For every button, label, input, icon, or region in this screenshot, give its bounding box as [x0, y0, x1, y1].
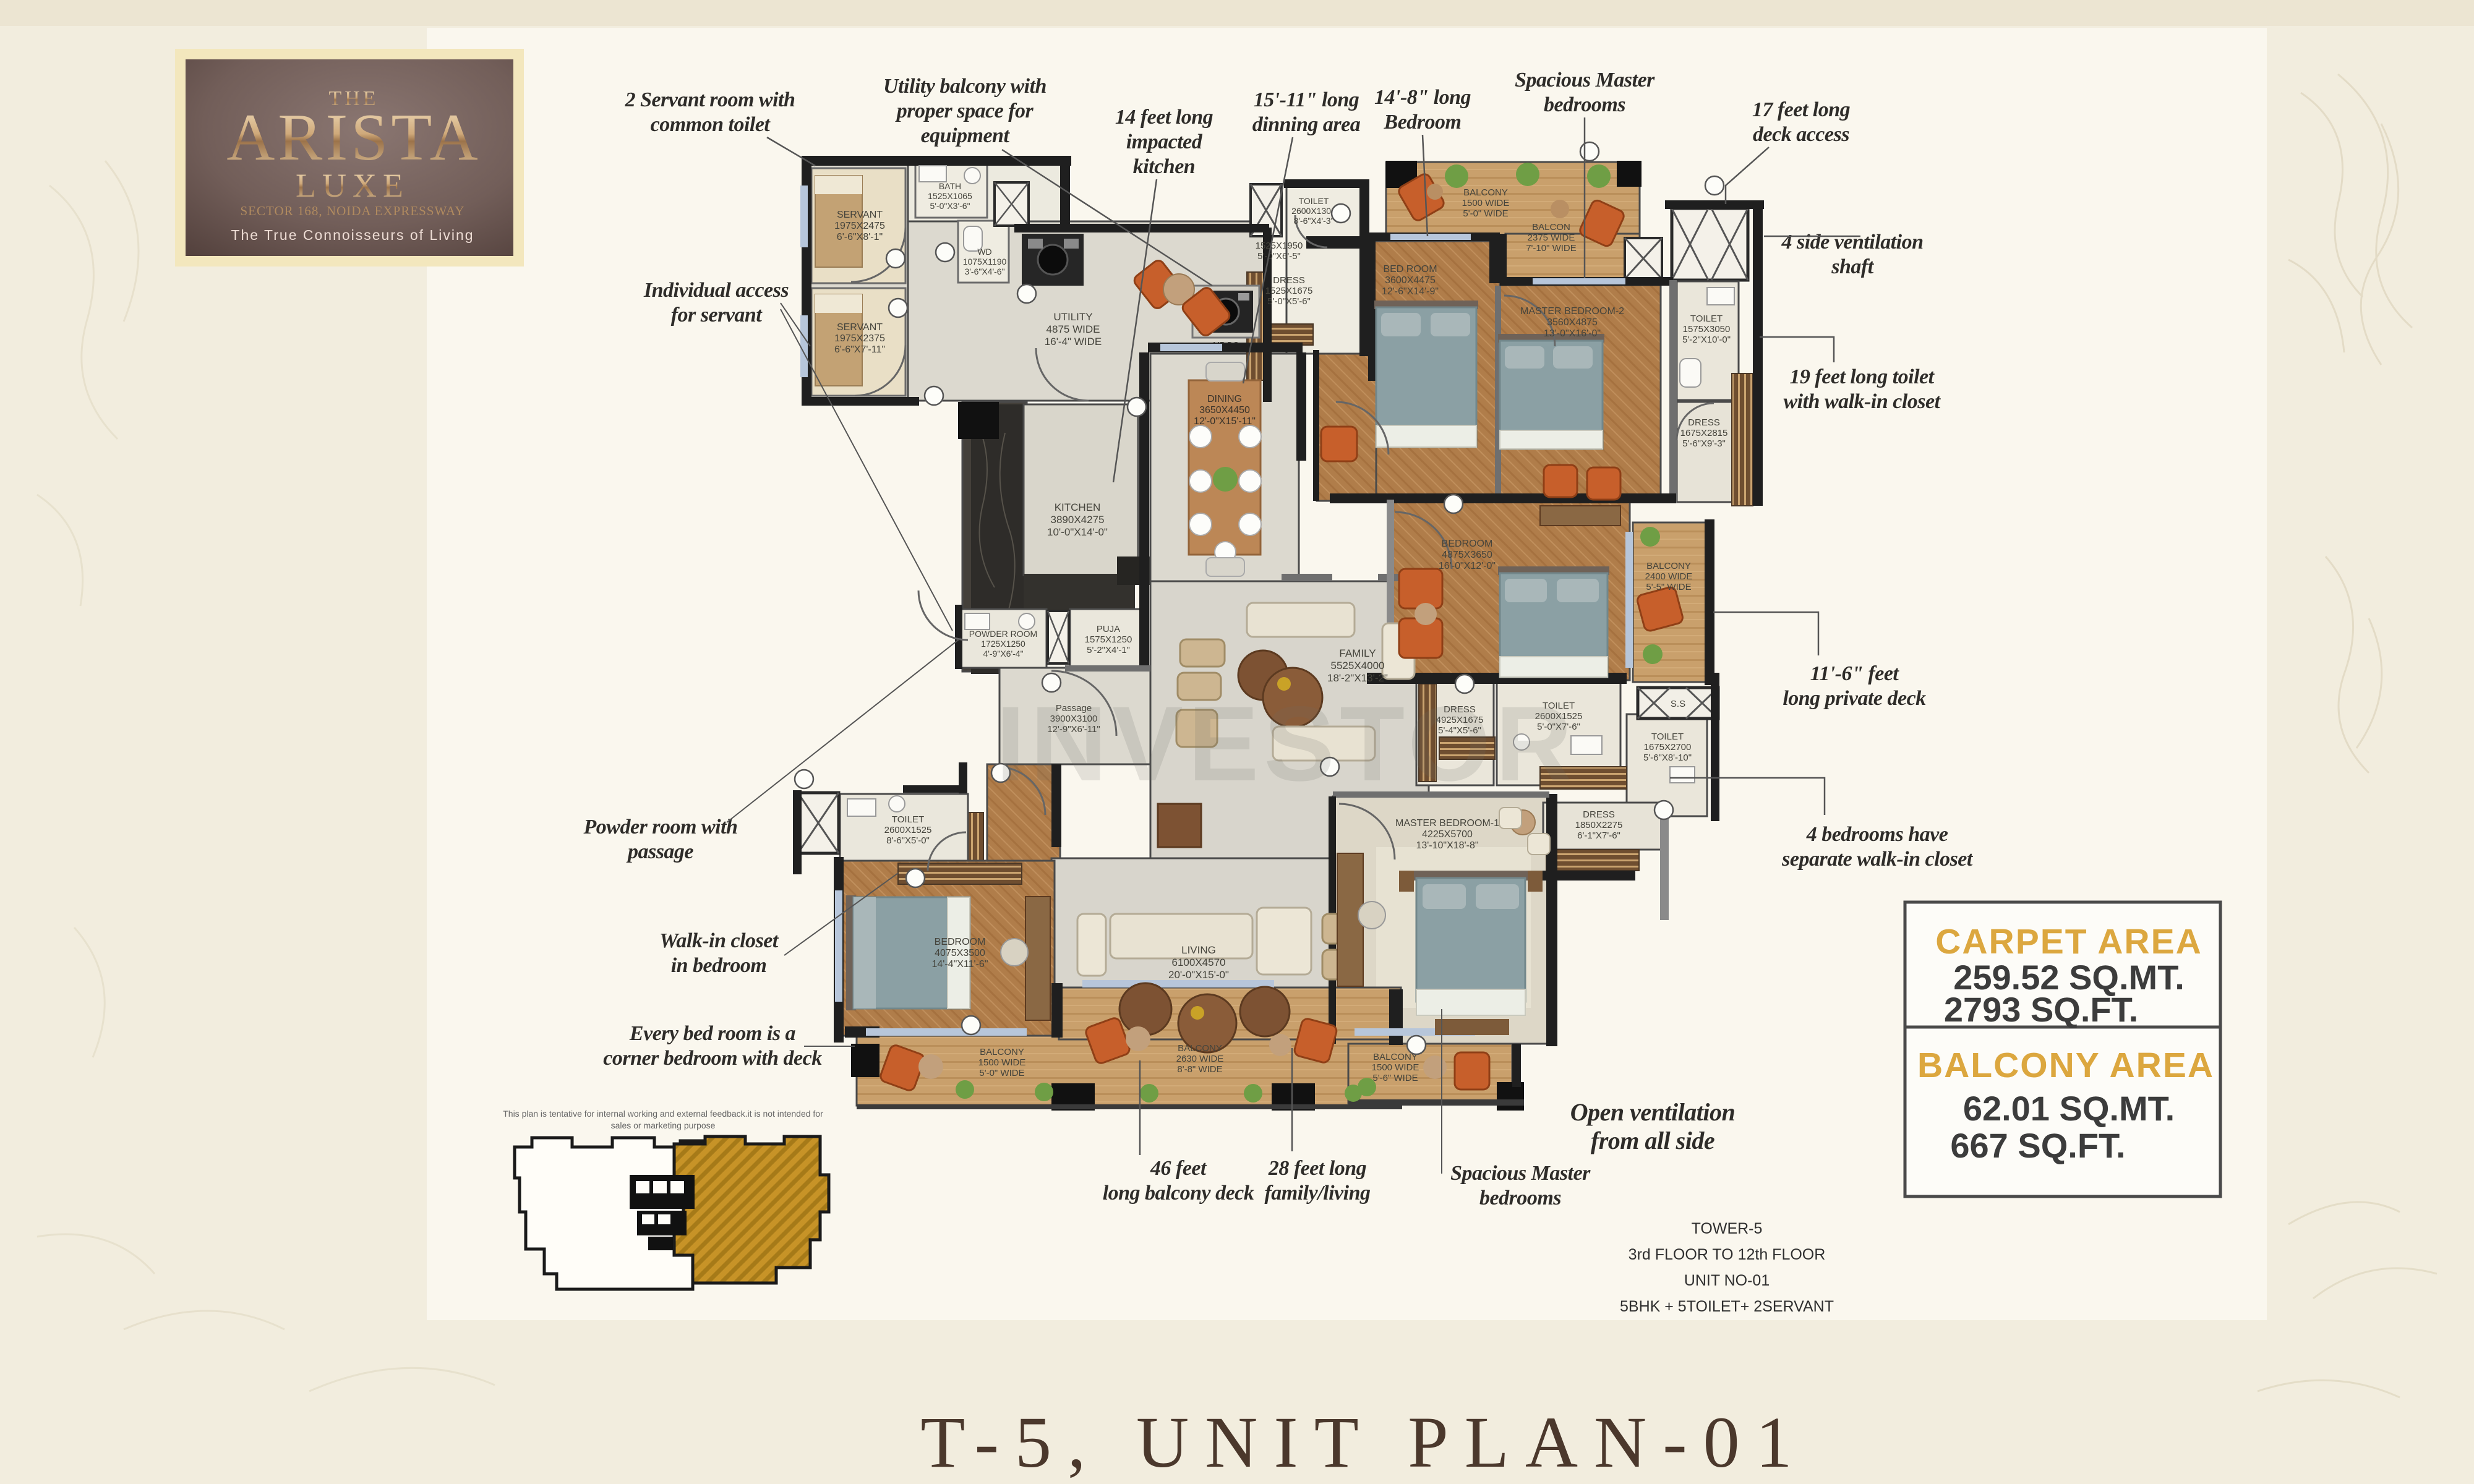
- svg-text:BALCONY2400 WIDE5'-5" WIDE: BALCONY2400 WIDE5'-5" WIDE: [1645, 561, 1693, 592]
- svg-text:2793 SQ.FT.: 2793 SQ.FT.: [1944, 990, 2138, 1029]
- svg-text:BALCON2375 WIDE7'-10" WIDE: BALCON2375 WIDE7'-10" WIDE: [1526, 222, 1577, 254]
- svg-text:1525X19505'-0"X6'-5": 1525X19505'-0"X6'-5": [1256, 241, 1303, 262]
- svg-text:Open ventilationfrom all side: Open ventilationfrom all side: [1570, 1098, 1735, 1154]
- svg-text:5BHK + 5TOILET+ 2SERVANT: 5BHK + 5TOILET+ 2SERVANT: [1620, 1298, 1834, 1315]
- svg-text:BALCONY1500 WIDE5'-0" WIDE: BALCONY1500 WIDE5'-0" WIDE: [1462, 187, 1510, 219]
- svg-text:BALCONY1500 WIDE5'-6" WIDE: BALCONY1500 WIDE5'-6" WIDE: [1372, 1052, 1419, 1083]
- svg-text:3rd FLOOR TO 12th FLOOR: 3rd FLOOR TO 12th FLOOR: [1629, 1246, 1826, 1263]
- svg-text:KITCHEN3890X427510'-0"X14'-0": KITCHEN3890X427510'-0"X14'-0": [1047, 501, 1108, 538]
- svg-text:BED ROOM3600X447512'-6"X14'-9": BED ROOM3600X447512'-6"X14'-9": [1382, 264, 1439, 297]
- svg-text:BEDROOM4075X350014'-4"X11'-6": BEDROOM4075X350014'-4"X11'-6": [932, 937, 988, 970]
- svg-text:SERVANT1975X23756'-6"X7'-11": SERVANT1975X23756'-6"X7'-11": [834, 322, 885, 355]
- svg-text:The True Connoisseurs of Livin: The True Connoisseurs of Living: [231, 227, 474, 243]
- svg-text:T-5, UNIT PLAN-01: T-5, UNIT PLAN-01: [920, 1402, 1808, 1483]
- svg-text:667 SQ.FT.: 667 SQ.FT.: [1950, 1126, 2125, 1165]
- svg-text:CARPET AREA: CARPET AREA: [1935, 922, 2202, 962]
- svg-text:ARISTA: ARISTA: [226, 101, 481, 174]
- svg-text:BALCONY2630 WIDE8'-8" WIDE: BALCONY2630 WIDE8'-8" WIDE: [1176, 1043, 1224, 1075]
- svg-text:LUXE: LUXE: [296, 167, 409, 204]
- svg-text:BEDROOM4875X365016'-0"X12'-0": BEDROOM4875X365016'-0"X12'-0": [1439, 539, 1496, 571]
- svg-text:SERVANT1975X24756'-6"X8'-1": SERVANT1975X24756'-6"X8'-1": [834, 210, 885, 242]
- svg-text:SECTOR 168, NOIDA EXPRESSWAY: SECTOR 168, NOIDA EXPRESSWAY: [241, 203, 465, 218]
- svg-text:TOWER-5: TOWER-5: [1692, 1220, 1763, 1237]
- svg-text:S.S: S.S: [1671, 699, 1685, 709]
- svg-text:BALCONY AREA: BALCONY AREA: [1917, 1046, 2214, 1085]
- svg-text:INVESTOR: INVESTOR: [996, 684, 1577, 803]
- svg-text:62.01 SQ.MT.: 62.01 SQ.MT.: [1963, 1089, 2175, 1128]
- svg-text:UNIT NO-01: UNIT NO-01: [1684, 1272, 1770, 1289]
- svg-text:BALCONY1500 WIDE5'-0" WIDE: BALCONY1500 WIDE5'-0" WIDE: [978, 1047, 1026, 1078]
